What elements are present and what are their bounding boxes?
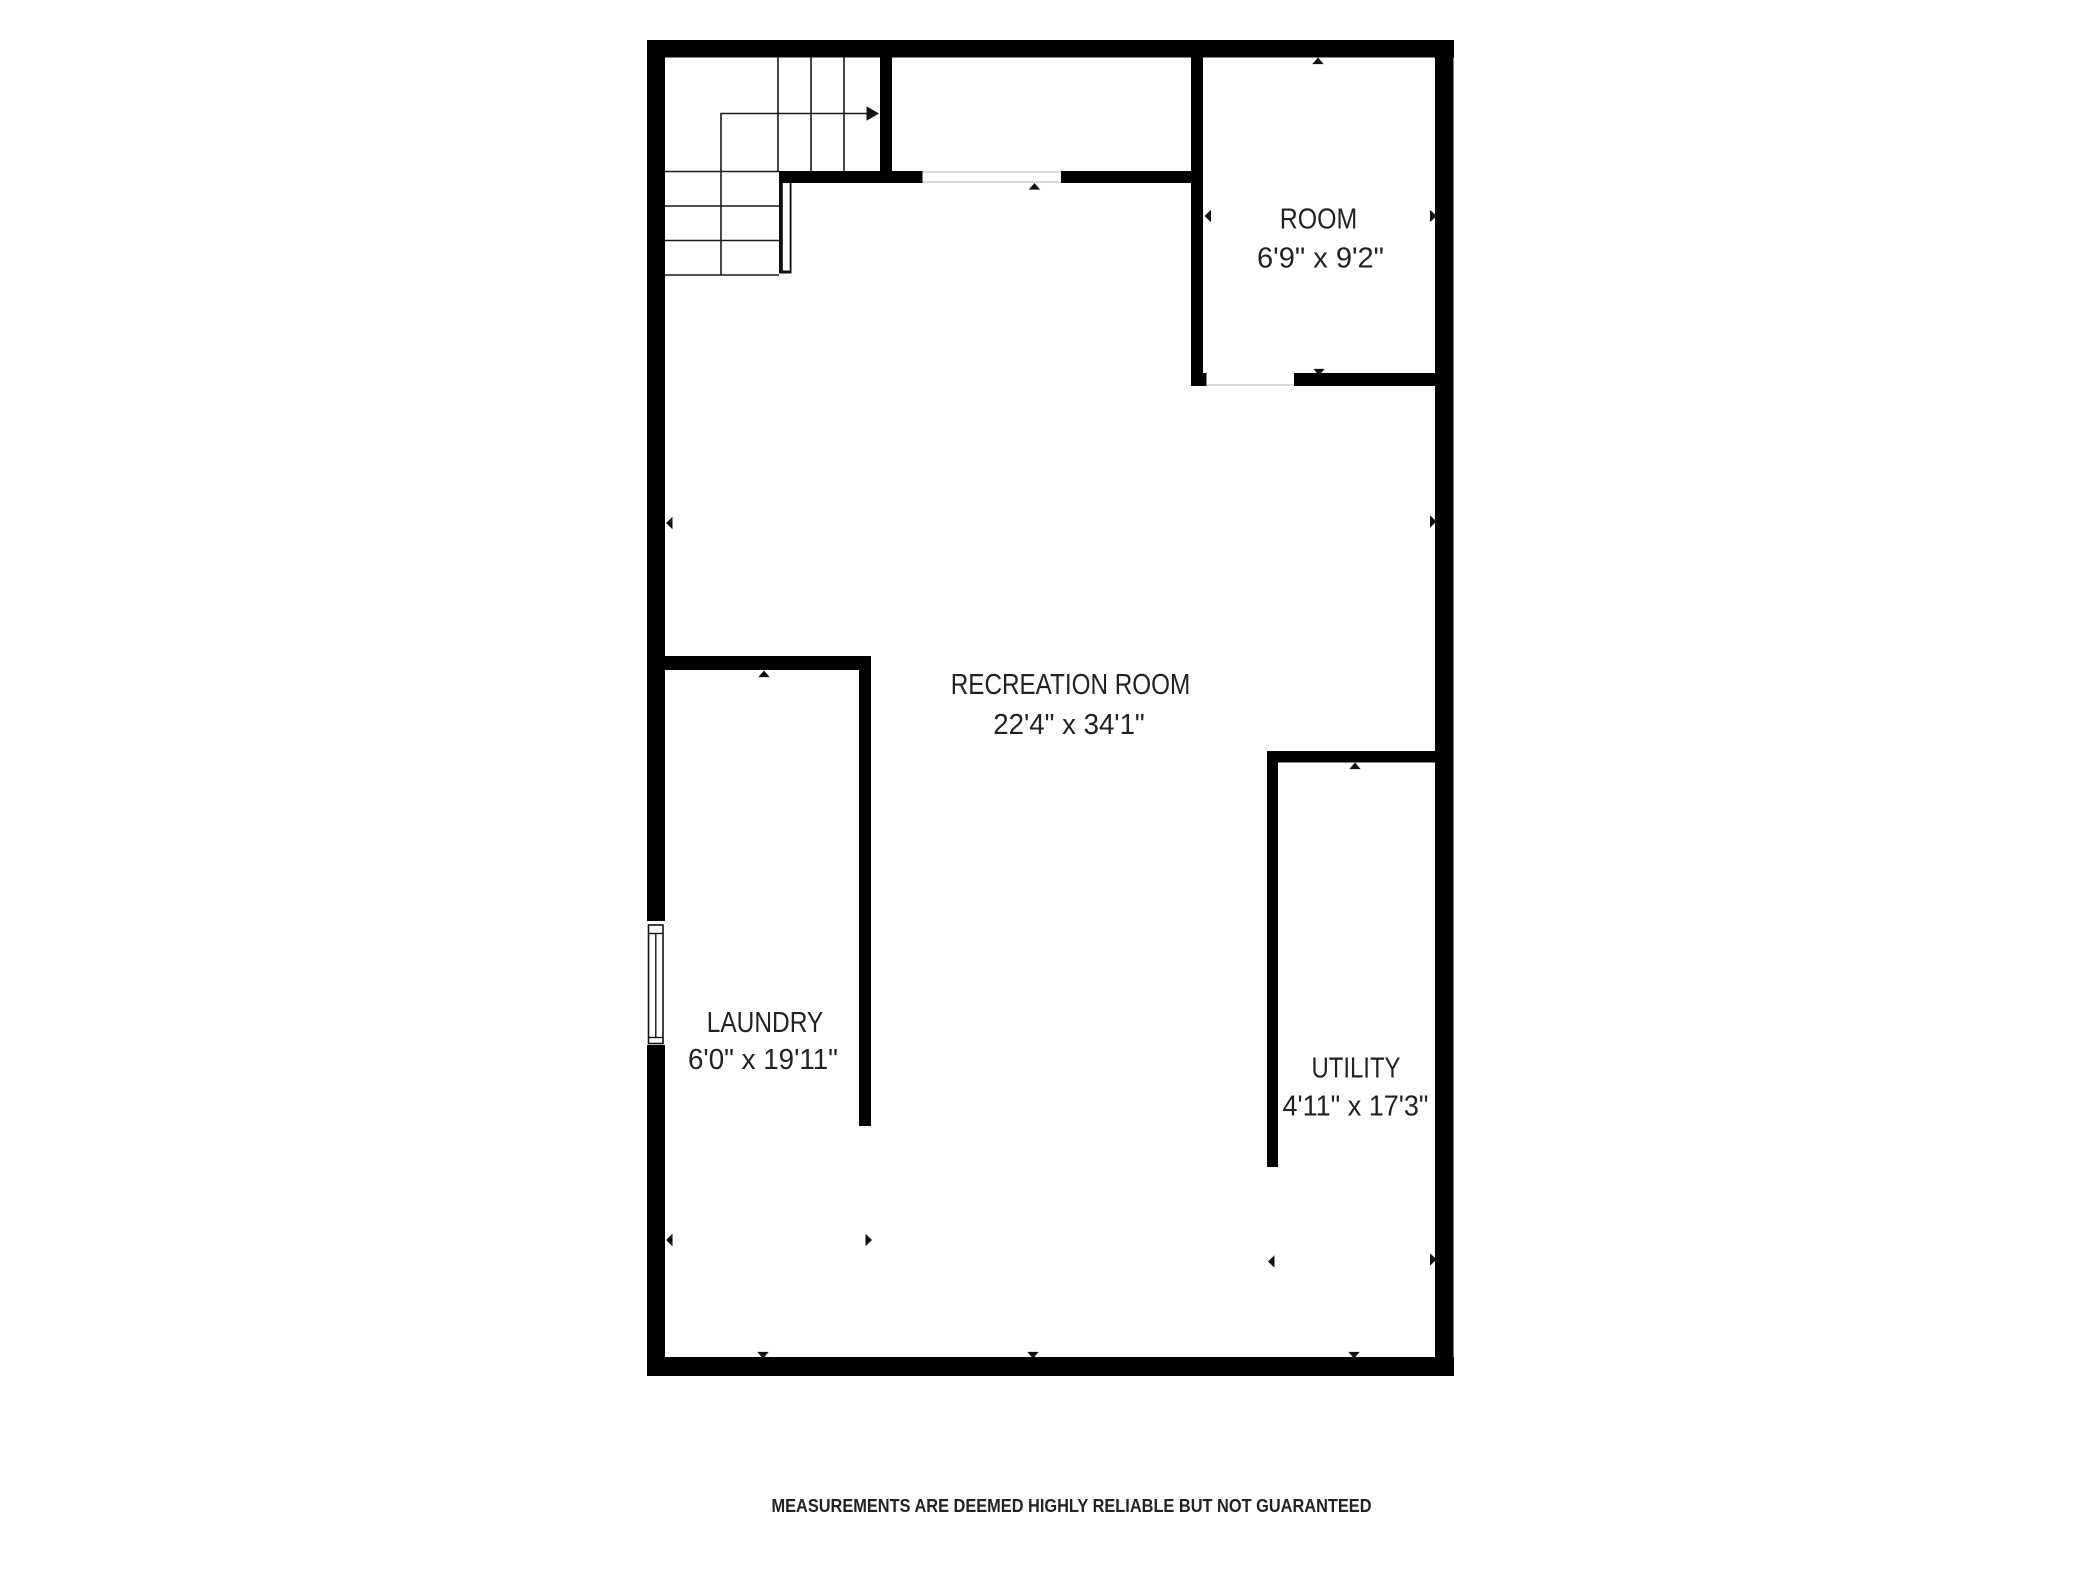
svg-text:6'9" x 9'2": 6'9" x 9'2" [1257, 243, 1384, 275]
svg-text:22'4" x 34'1": 22'4" x 34'1" [993, 709, 1145, 741]
svg-text:6'0" x 19'11": 6'0" x 19'11" [688, 1044, 838, 1076]
svg-text:4'11" x 17'3": 4'11" x 17'3" [1283, 1091, 1429, 1123]
svg-text:LAUNDRY: LAUNDRY [707, 1007, 824, 1039]
svg-text:RECREATION ROOM: RECREATION ROOM [951, 669, 1191, 701]
svg-text:MEASUREMENTS ARE DEEMED HIGHLY: MEASUREMENTS ARE DEEMED HIGHLY RELIABLE … [772, 1495, 1372, 1516]
svg-text:UTILITY: UTILITY [1312, 1053, 1401, 1085]
svg-text:ROOM: ROOM [1280, 204, 1358, 236]
